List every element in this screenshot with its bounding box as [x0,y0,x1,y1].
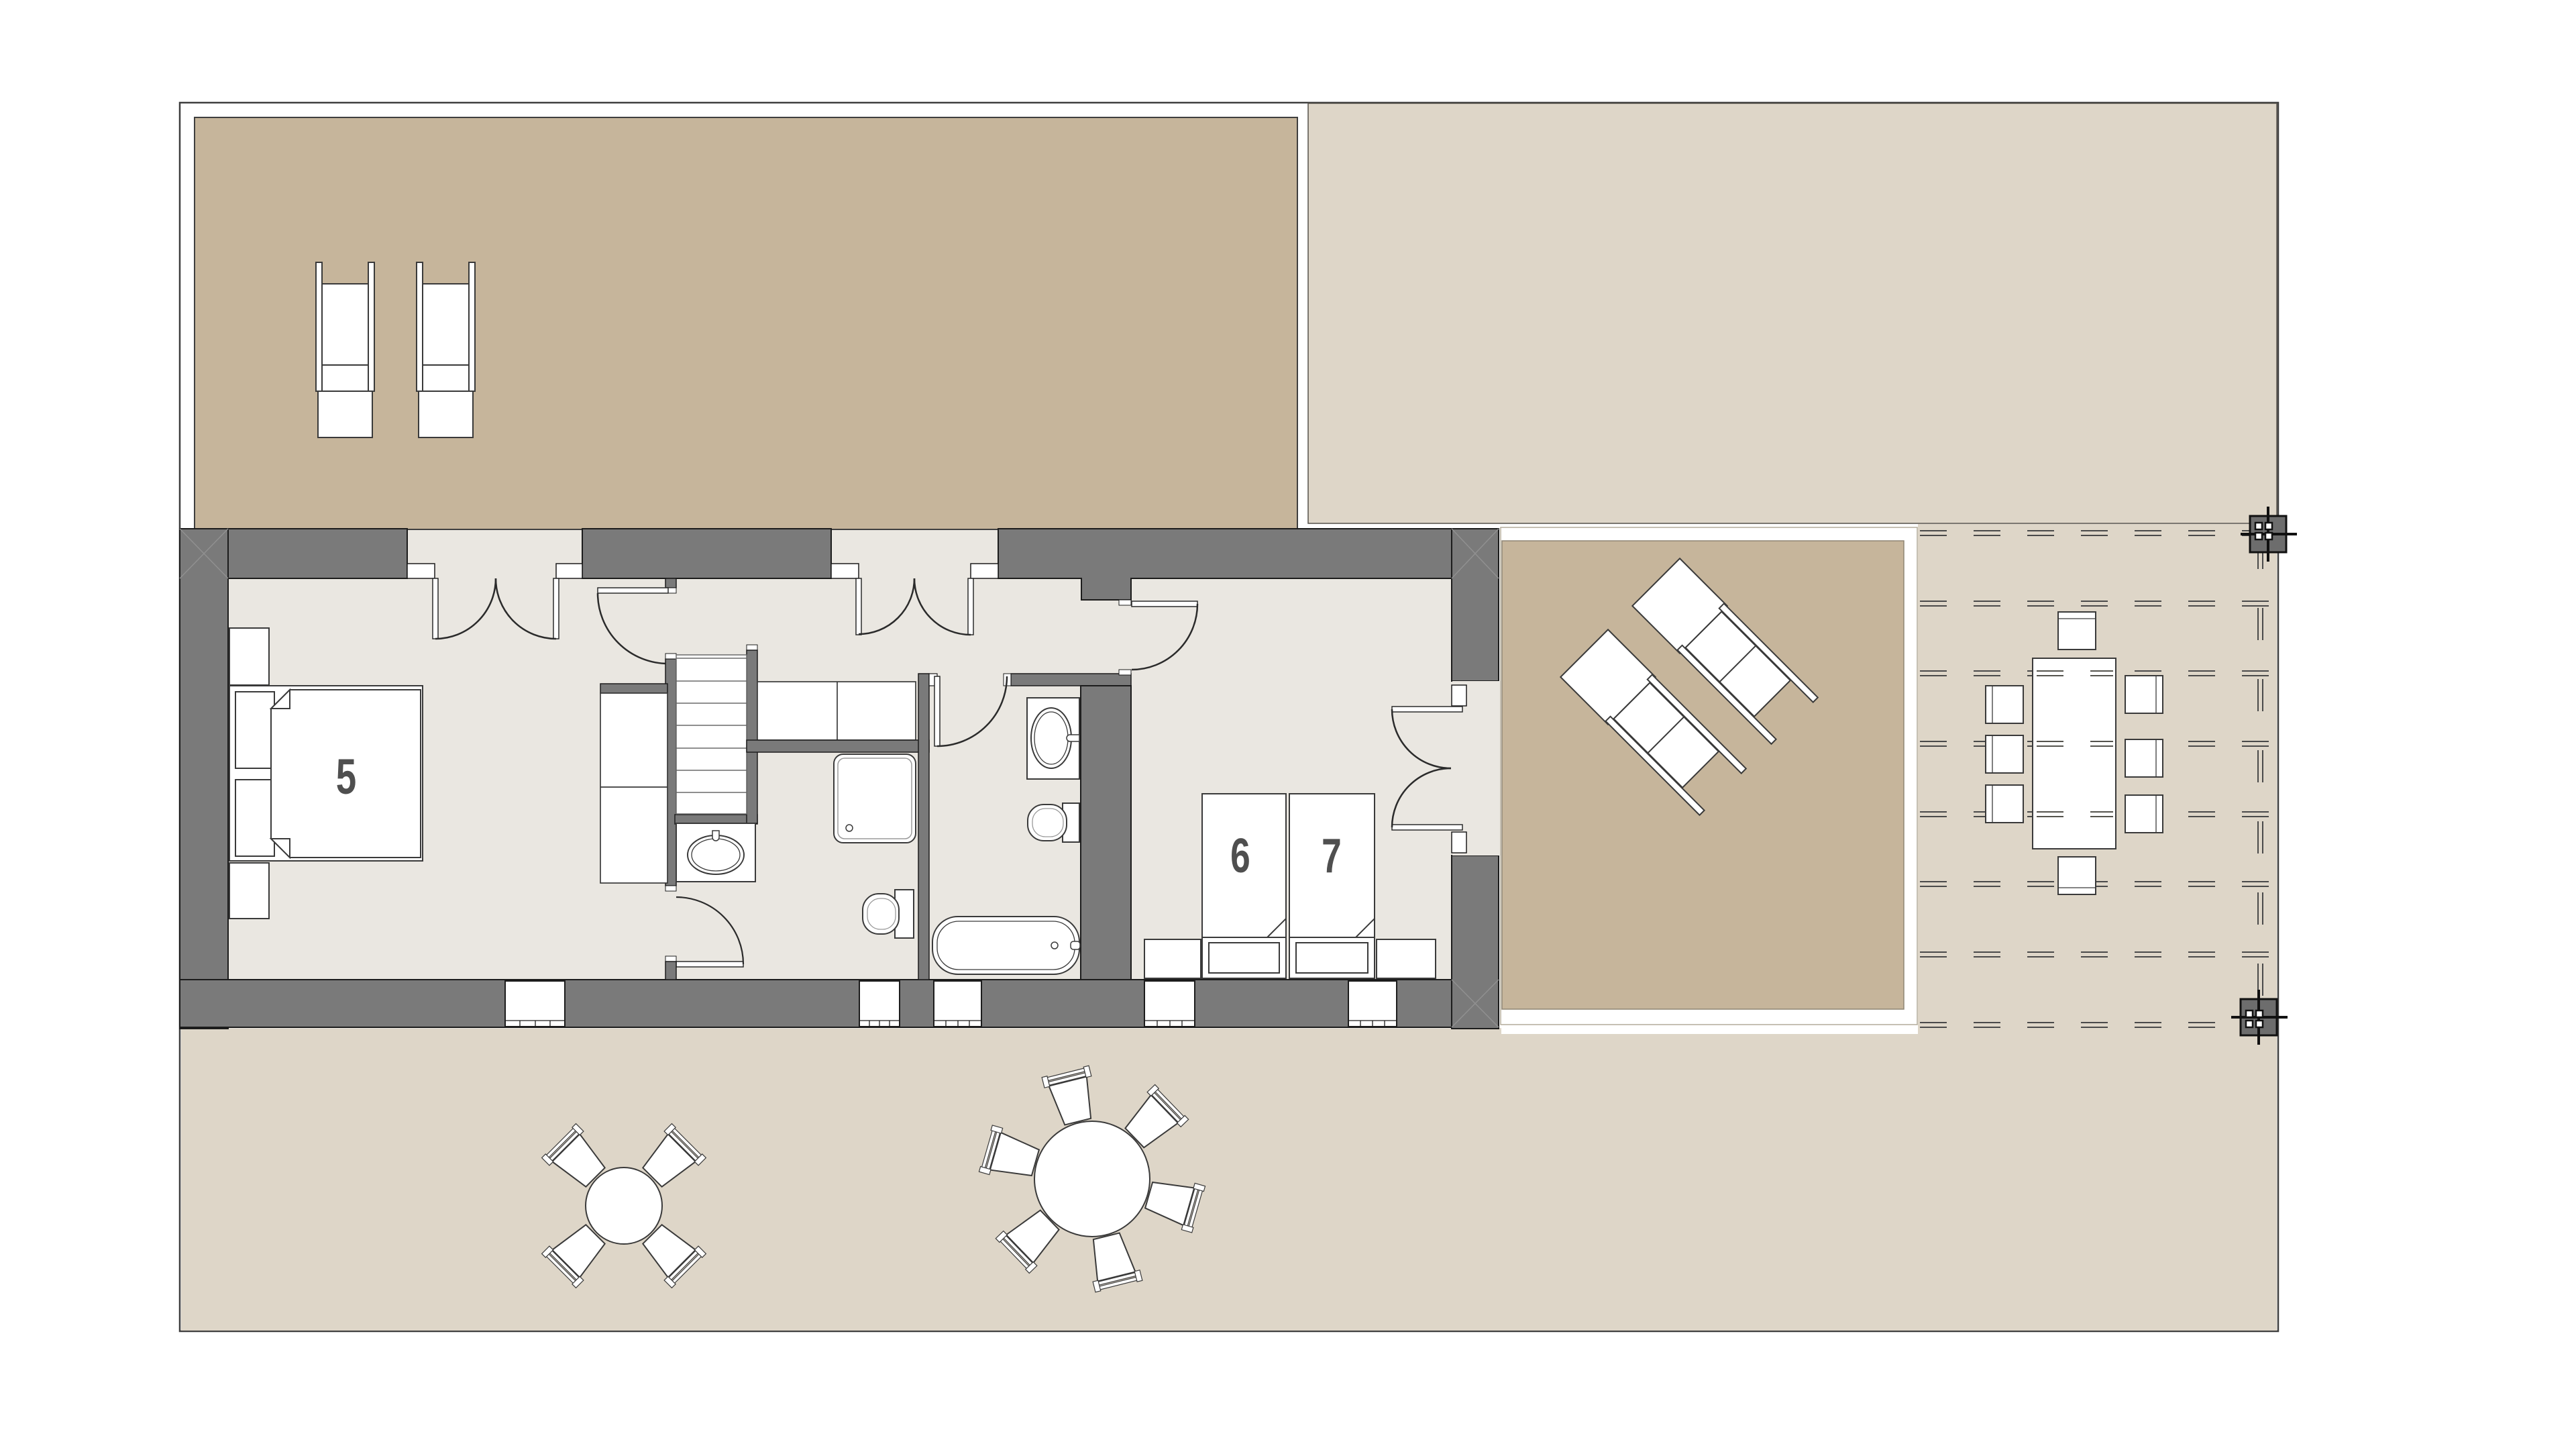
svg-text:7: 7 [1322,829,1342,883]
svg-text:5: 5 [336,749,356,805]
svg-text:6: 6 [1230,829,1250,883]
